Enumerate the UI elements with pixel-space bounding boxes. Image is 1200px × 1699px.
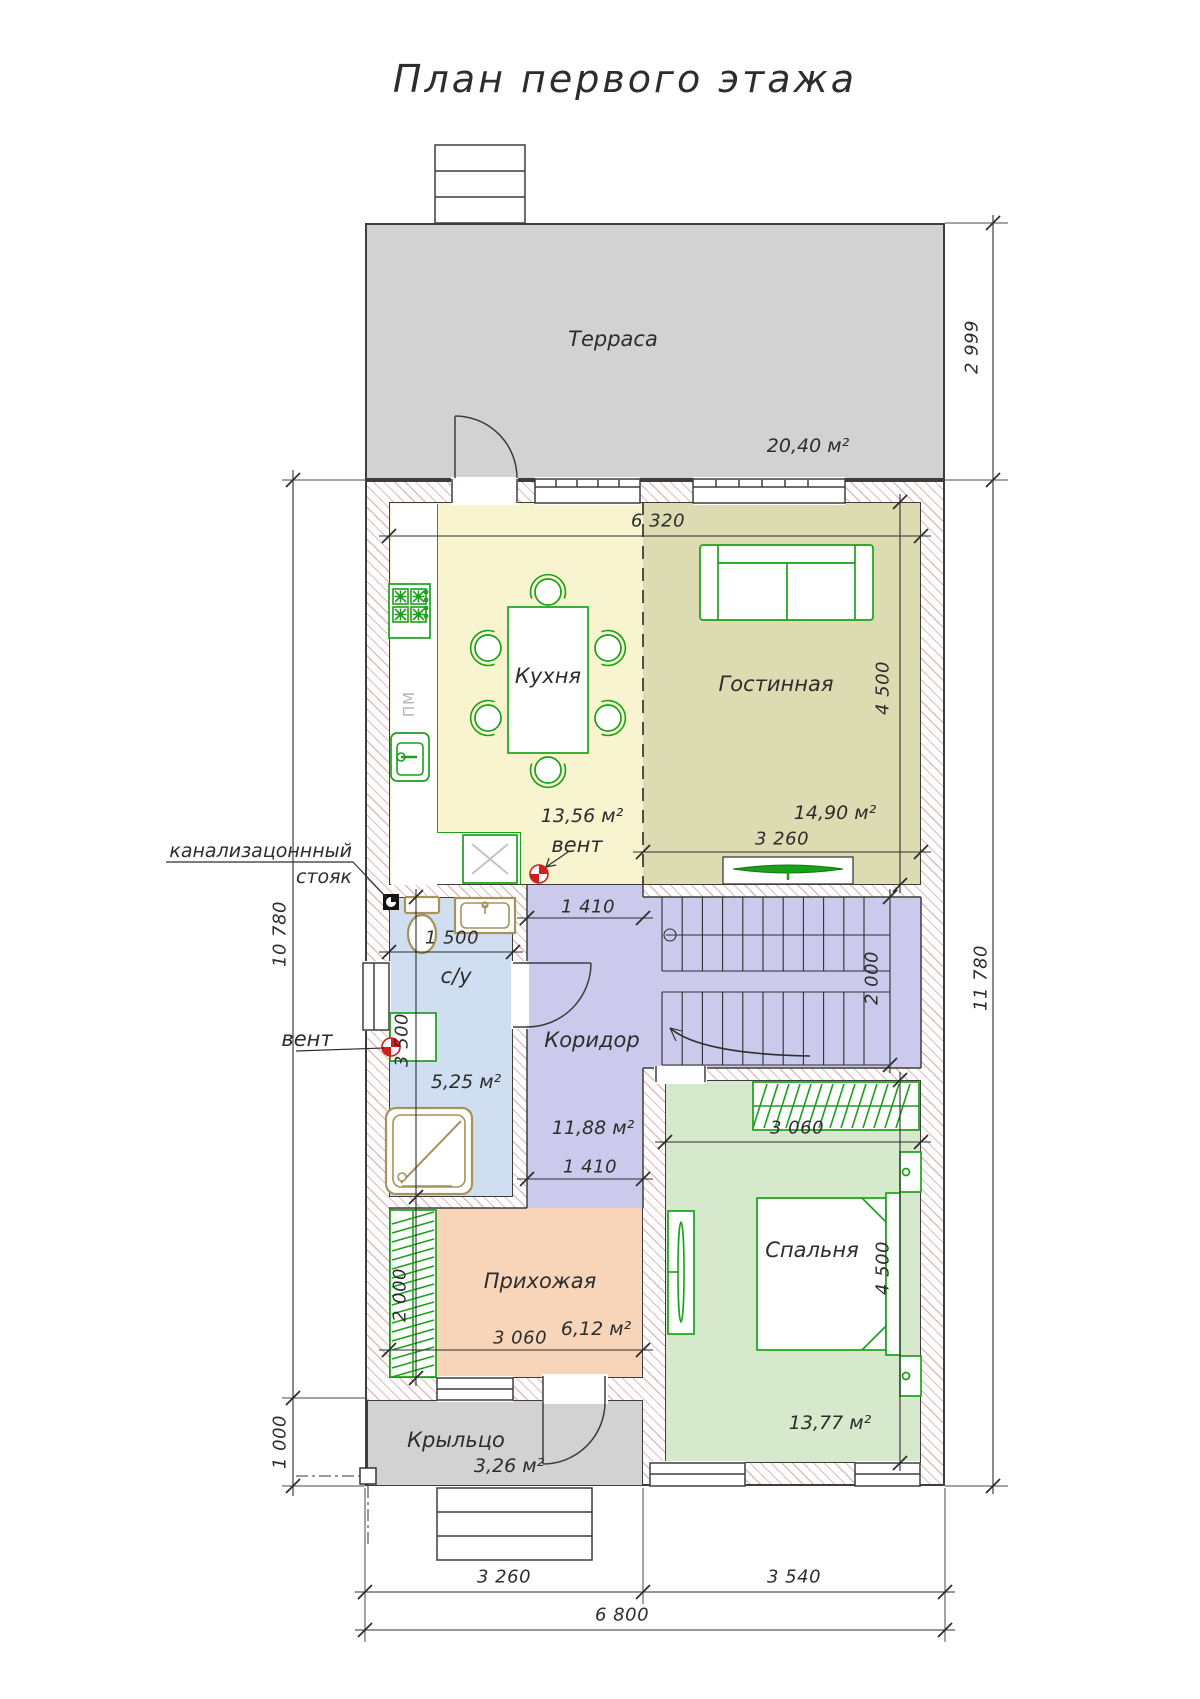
dim-passage-bottom: 1 410	[563, 1159, 617, 1178]
dim-passage-top: 1 410	[561, 899, 615, 918]
living-window	[693, 477, 845, 505]
dim-left-depth: 10 780	[272, 901, 291, 967]
kitchen-label: Кухня	[515, 665, 581, 687]
kitchen-vent-label: вент	[551, 834, 602, 856]
sewer-label-line2: стояк	[140, 866, 352, 888]
terrace-label: Терраса	[568, 328, 658, 350]
living-area: 14,90 м²	[794, 804, 876, 824]
dim-bedroom-wardrobe: 3 060	[770, 1120, 824, 1139]
corridor-area: 11,88 м²	[552, 1119, 634, 1139]
dim-terrace-depth: 2 999	[964, 320, 983, 374]
bathroom-window-opening	[361, 961, 391, 1031]
dim-interior-width: 6 320	[631, 513, 685, 532]
dim-bath-width: 1 500	[425, 930, 479, 949]
corridor-label: Коридор	[544, 1029, 639, 1051]
dim-porch-depth: 1 000	[272, 1415, 291, 1469]
hallway-label: Прихожая	[484, 1270, 596, 1292]
bath-vent-label: вент	[281, 1028, 332, 1050]
dim-hallway-width: 3 060	[493, 1330, 547, 1349]
dim-bottom-left: 3 260	[477, 1569, 531, 1588]
floor-plan-page: План первого этажа Терраса 20,40 м² Кухн…	[0, 0, 1200, 1699]
sewer-label-line1: канализацоннный	[140, 840, 352, 862]
bathroom-area: 5,25 м²	[431, 1073, 501, 1093]
dim-bottom-right: 3 540	[767, 1569, 821, 1588]
page-title: План первого этажа	[393, 60, 857, 100]
living-label: Гостинная	[719, 673, 834, 695]
porch-label: Крыльцо	[407, 1429, 505, 1451]
dim-living-width: 3 260	[755, 831, 809, 850]
dim-bedroom-height: 4 500	[875, 1241, 894, 1295]
dim-hall-wardrobe: 2 000	[392, 1268, 411, 1322]
datum-marker	[296, 1468, 376, 1545]
dim-bath-height: 3 500	[394, 1013, 413, 1067]
kitchen-counter-bottom	[437, 832, 521, 884]
dim-stairs: 2 000	[864, 951, 883, 1005]
kitchen-area: 13,56 м²	[541, 807, 623, 827]
bathroom-door-opening	[511, 961, 529, 1029]
terrace-door-opening	[451, 477, 518, 505]
terrace-area: 20,40 м²	[767, 437, 849, 457]
dishwasher-label: ПМ	[402, 691, 418, 717]
room-hallway	[389, 1208, 643, 1378]
dim-total-width: 6 800	[595, 1607, 649, 1626]
bedroom-window-right	[855, 1461, 920, 1488]
bedroom-window-left	[650, 1461, 745, 1488]
terrace	[365, 223, 945, 480]
bedroom-label: Спальня	[765, 1239, 858, 1261]
bathroom-label: с/у	[440, 965, 471, 987]
porch-door-opening	[542, 1374, 608, 1404]
hallway-window	[437, 1376, 513, 1402]
terrace-steps-icon	[435, 145, 525, 223]
kitchen-window	[535, 477, 640, 505]
dim-living-height: 4 500	[875, 661, 894, 715]
bedroom-area: 13,77 м²	[789, 1414, 871, 1434]
porch-area: 3,26 м²	[474, 1457, 544, 1477]
hallway-area: 6,12 м²	[561, 1320, 631, 1340]
bedroom-door-opening	[654, 1066, 707, 1084]
dim-house-depth: 11 780	[973, 945, 992, 1011]
porch-steps-icon	[437, 1488, 592, 1560]
